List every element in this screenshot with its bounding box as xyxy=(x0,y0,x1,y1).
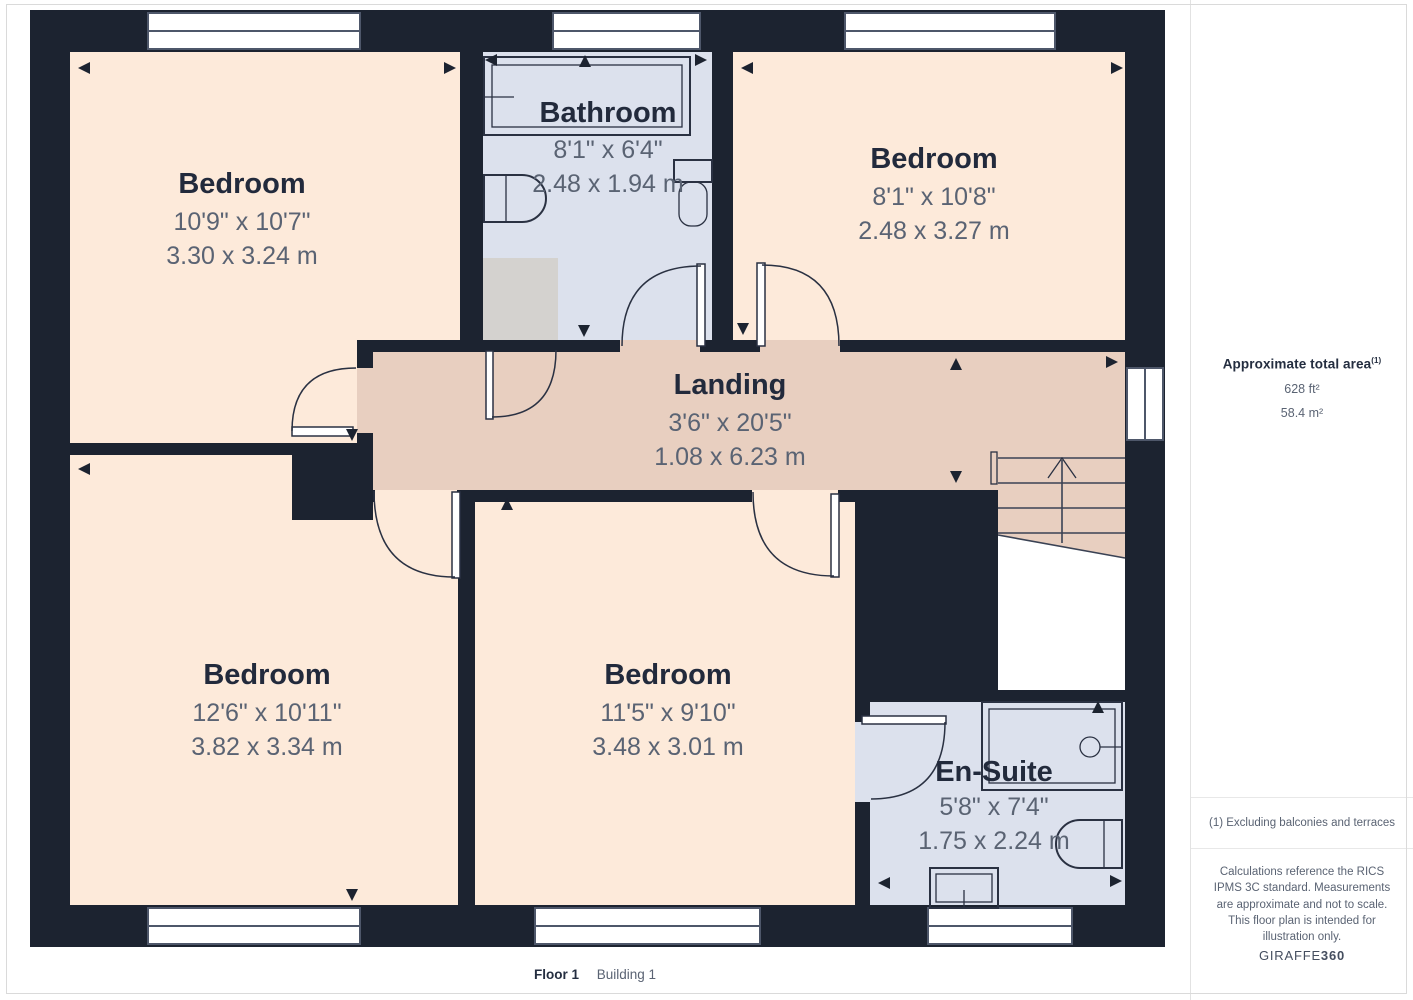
floorplan-canvas: Bedroom 10'9" x 10'7" 3.30 x 3.24 m Bath… xyxy=(0,0,1190,1000)
room-dims-imp: 12'6" x 10'11" xyxy=(192,699,341,727)
room-dims-met: 3.48 x 3.01 m xyxy=(592,733,743,761)
cupboard xyxy=(483,258,558,340)
stair-void xyxy=(998,535,1125,690)
giraffe360-logo: GIRAFFE360 xyxy=(1191,948,1413,963)
room-dims-met: 2.48 x 3.27 m xyxy=(858,217,1009,245)
doorway-en-suite xyxy=(855,722,870,802)
room-dims-met: 3.82 x 3.34 m xyxy=(191,733,342,761)
total-area-ft: 628 ft² xyxy=(1191,382,1413,396)
brand-name: GIRAFFE xyxy=(1259,948,1321,963)
total-area-superscript: (1) xyxy=(1371,356,1381,365)
brand-suffix: 360 xyxy=(1321,948,1345,963)
room-dims-imp: 11'5" x 9'10" xyxy=(600,699,735,727)
total-area-m: 58.4 m² xyxy=(1191,406,1413,420)
building-label: Building 1 xyxy=(597,967,656,982)
total-area-title: Approximate total area(1) xyxy=(1191,356,1413,372)
room-dims-imp: 8'1" x 10'8" xyxy=(872,183,995,211)
total-area-label: Approximate total area xyxy=(1223,357,1372,372)
room-label: Bedroom xyxy=(203,659,330,691)
room-dims-imp: 3'6" x 20'5" xyxy=(668,409,791,437)
room-label: Landing xyxy=(674,369,787,401)
room-label: Bedroom xyxy=(178,168,305,200)
room-dims-met: 1.08 x 6.23 m xyxy=(654,443,805,471)
disclaimer-text: Calculations reference the RICS IPMS 3C … xyxy=(1209,864,1395,946)
room-label: Bathroom xyxy=(540,97,677,129)
room-label: Bedroom xyxy=(604,659,731,691)
info-sidebar: Approximate total area(1) 628 ft² 58.4 m… xyxy=(1190,0,1413,1000)
total-area-block: Approximate total area(1) 628 ft² 58.4 m… xyxy=(1191,356,1413,420)
room-dims-imp: 5'8" x 7'4" xyxy=(939,793,1048,821)
doorway-bedroom-top-left xyxy=(357,368,373,433)
doorway-bedroom-bottom-middle xyxy=(752,490,838,502)
room-dims-imp: 8'1" x 6'4" xyxy=(553,136,662,164)
room-label: Bedroom xyxy=(870,143,997,175)
floor-label: Floor 1 xyxy=(534,967,579,982)
floorplan-page: Bedroom 10'9" x 10'7" 3.30 x 3.24 m Bath… xyxy=(0,0,1413,1000)
room-dims-imp: 10'9" x 10'7" xyxy=(173,208,310,236)
room-label: En-Suite xyxy=(935,756,1053,788)
room-dims-met: 3.30 x 3.24 m xyxy=(166,242,317,270)
footnote: (1) Excluding balconies and terraces xyxy=(1191,797,1413,849)
floor-caption: Floor 1 Building 1 xyxy=(0,967,1190,982)
doorway-bedroom-bottom-left xyxy=(375,490,457,502)
room-dims-met: 1.75 x 2.24 m xyxy=(918,827,1069,855)
room-dims-met: 2.48 x 1.94 m xyxy=(532,170,683,198)
